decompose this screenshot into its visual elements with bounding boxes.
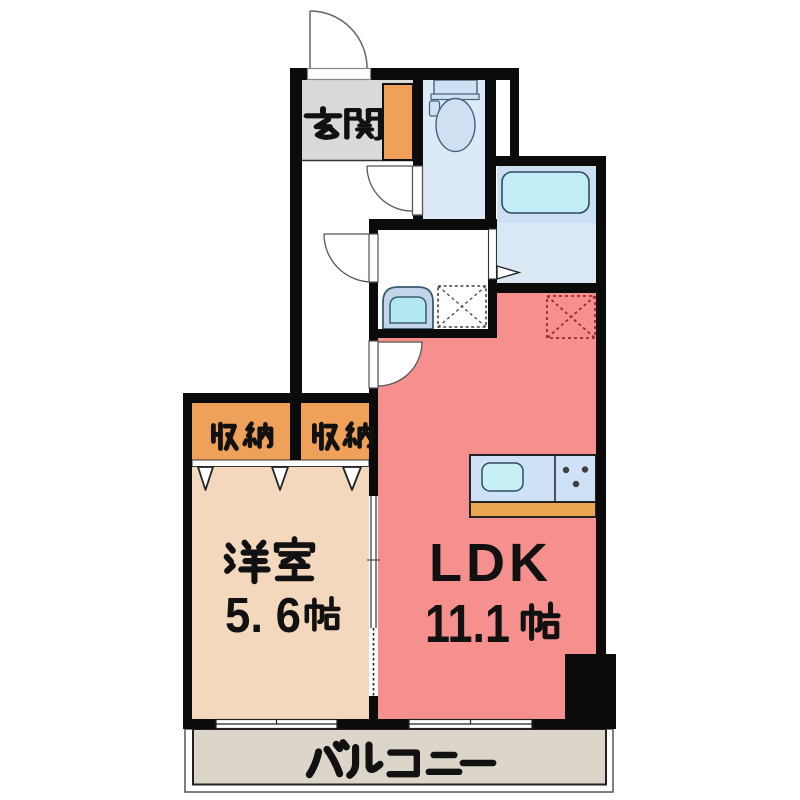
svg-text:11.1: 11.1 [425, 594, 510, 654]
svg-text:5. 6: 5. 6 [225, 589, 301, 643]
svg-text:LDK: LDK [429, 533, 548, 593]
